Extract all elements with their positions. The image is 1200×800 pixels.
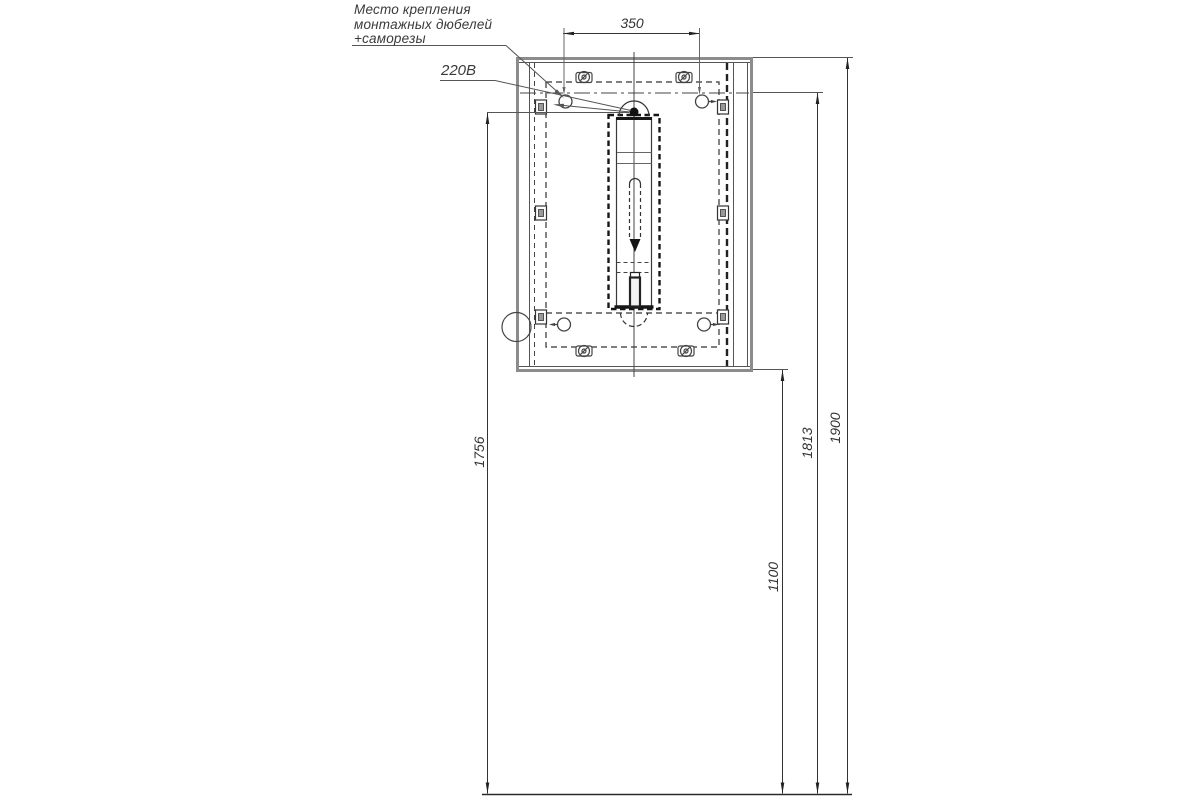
- dim-label-1900: 1900: [827, 412, 843, 443]
- clip-right-bottom: [718, 310, 729, 324]
- dim-label-1100: 1100: [765, 562, 781, 592]
- cable-down-arrow: [630, 179, 641, 252]
- screw-bottom-left: [576, 346, 592, 357]
- dowel-hole-bottom-right: [698, 318, 711, 331]
- power-label: 220В: [441, 62, 476, 79]
- dowel-hole-top-right: [696, 95, 709, 108]
- clip-left-middle: [536, 206, 547, 220]
- installation-drawing-page: Место крепления монтажных дюбелей +самор…: [0, 0, 1200, 800]
- dim-label-350: 350: [602, 15, 662, 31]
- screw-bottom-right: [678, 346, 694, 357]
- screw-top-right: [676, 72, 692, 83]
- clip-left-top: [536, 100, 547, 114]
- mounting-note: Место крепления монтажных дюбелей +самор…: [354, 3, 492, 47]
- lower-slot: [630, 273, 640, 307]
- mounting-note-line-3: +саморезы: [354, 32, 492, 47]
- clip-right-top: [718, 100, 729, 114]
- cabinet-mounting-drawing: [0, 0, 1200, 800]
- mounting-note-line-2: монтажных дюбелей: [354, 18, 492, 33]
- dim-label-1813: 1813: [799, 427, 815, 458]
- screw-top-left: [576, 72, 592, 83]
- dimension-350: [563, 28, 702, 95]
- clip-left-bottom: [536, 310, 547, 324]
- dim-label-1756: 1756: [471, 436, 487, 467]
- mounting-note-line-1: Место крепления: [354, 3, 492, 18]
- clip-right-middle: [718, 206, 729, 220]
- dowel-hole-bottom-left: [558, 318, 571, 331]
